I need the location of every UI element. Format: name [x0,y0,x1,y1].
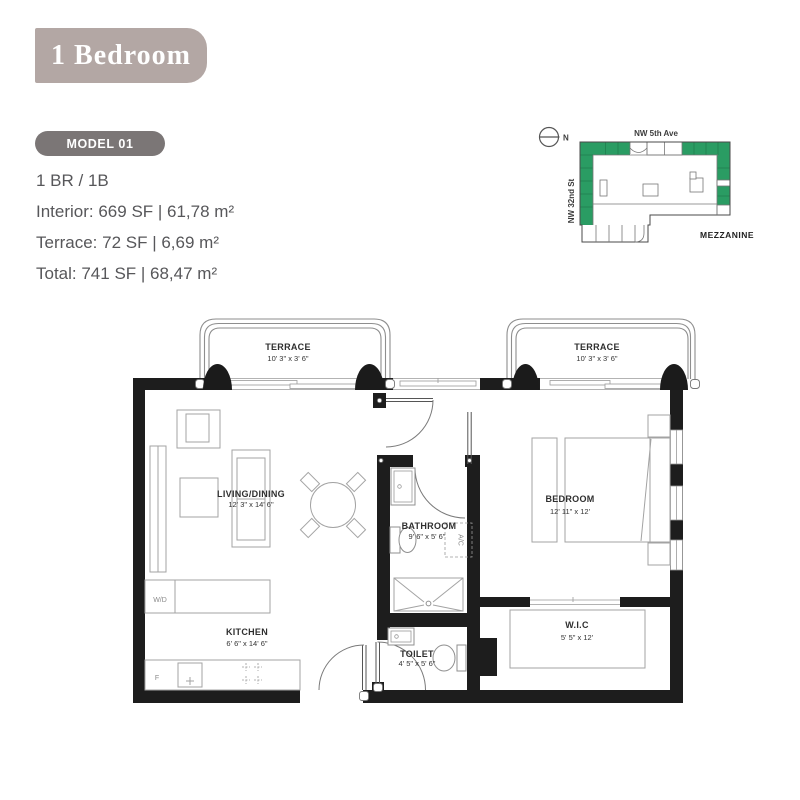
unit-terrace-area: Terrace: 72 SF | 6,69 m² [36,227,234,258]
toilet-sink [388,628,414,645]
building-inner-lines [593,155,718,242]
cooktop [242,663,262,684]
bedroom-label: BEDROOM [545,494,594,504]
bedroom-furniture [532,415,670,565]
kitchen-dims: 6' 6" x 14' 6" [226,639,267,648]
street-label-top: NW 5th Ave [634,129,678,138]
unit-type: 1 BR / 1B [36,165,234,196]
north-label: N [563,134,569,143]
page-title-box: 1 Bedroom [35,28,207,83]
fridge-label: F [155,675,159,682]
wic-label: W.I.C [565,620,589,630]
toilet-label: TOILET [400,649,434,659]
model-badge-label: MODEL 01 [66,137,133,151]
terrace-left-label: TERRACE [265,342,311,352]
level-label: MEZZANINE [700,230,754,240]
windows [196,378,700,570]
site-key-plan: N NW 5th Ave NW 32nd St MEZZANINE [530,108,780,248]
street-label-left: NW 32nd St [567,178,576,223]
terrace-right-dims: 10' 3" x 3' 6" [576,354,617,363]
kitchen-fixtures: W/D F [145,580,300,690]
dining-table [311,483,356,528]
bedroom-dims: 12' 11" x 12' [550,507,591,516]
floorplan-sheet: { "header": { "title": "1 Bedroom", "mod… [0,0,800,800]
unit-stats: 1 BR / 1B Interior: 669 SF | 61,78 m² Te… [36,165,234,289]
unit-total-area: Total: 741 SF | 68,47 m² [36,258,234,289]
model-badge: MODEL 01 [35,131,165,156]
bed [565,438,650,542]
page-title: 1 Bedroom [51,40,191,72]
unit-interior-area: Interior: 669 SF | 61,78 m² [36,196,234,227]
bathroom-label: BATHROOM [402,521,457,531]
living-label: LIVING/DINING [217,489,285,499]
north-arrow-icon: N [539,128,569,147]
floor-plan: W/D F A/C [130,308,710,720]
kitchen-label: KITCHEN [226,627,268,637]
ac-label: A/C [457,534,464,546]
washer-dryer-label: W/D [153,597,167,604]
shower [394,578,463,611]
terrace-left-dims: 10' 3" x 3' 6" [267,354,308,363]
living-dims: 12' 3" x 14' 6" [228,500,274,509]
wic-dims: 5' 5" x 12' [561,633,594,642]
bathroom-dims: 9' 6" x 5' 6" [409,532,446,541]
toilet-dims: 4' 5" x 5' 6" [399,659,436,668]
terrace-right-label: TERRACE [574,342,620,352]
toilet-fixture [457,645,466,671]
bathroom-sink [391,468,415,505]
